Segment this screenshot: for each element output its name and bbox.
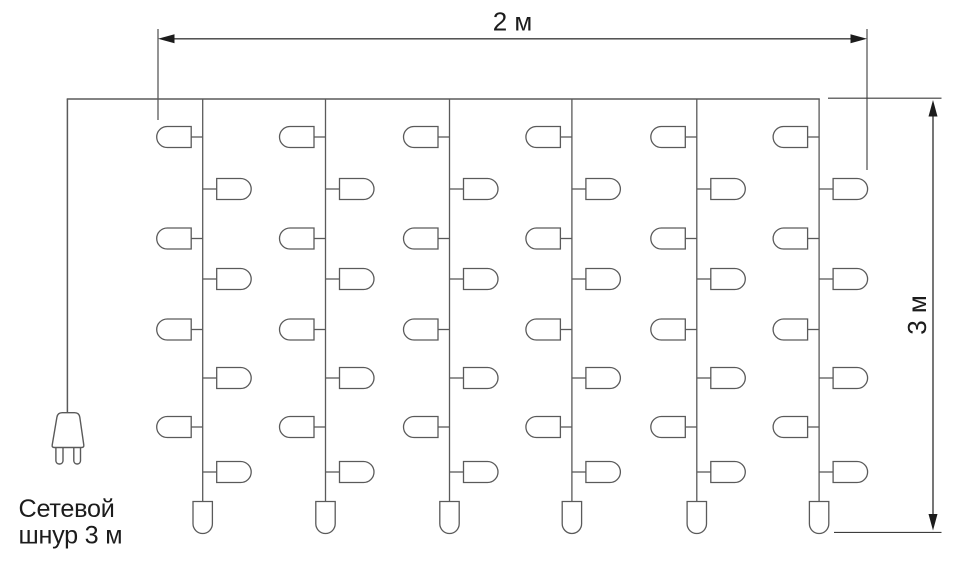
svg-text:2 м: 2 м [493,7,533,37]
svg-text:шнур 3 м: шнур 3 м [19,522,123,550]
svg-text:3 м: 3 м [902,295,932,335]
svg-text:Сетевой: Сетевой [19,495,115,523]
